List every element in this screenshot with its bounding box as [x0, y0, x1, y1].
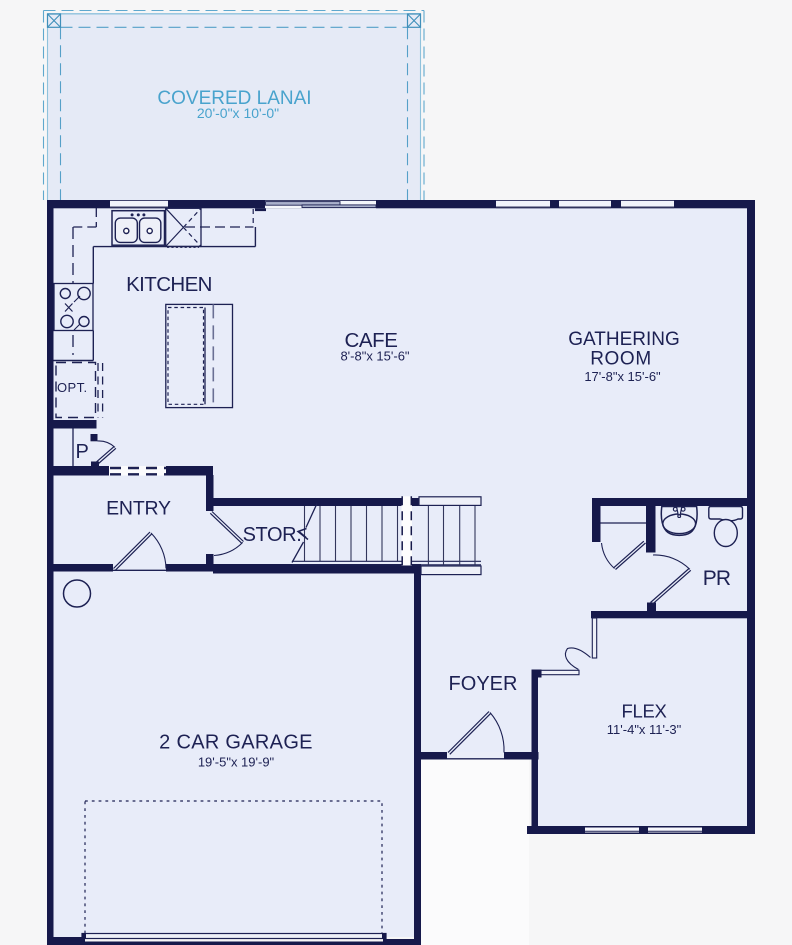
svg-text:ENTRY: ENTRY: [106, 498, 171, 520]
svg-text:OPT.: OPT.: [57, 380, 88, 395]
svg-text:11'-4"x 11'-3": 11'-4"x 11'-3": [607, 722, 682, 737]
svg-text:8'-8"x 15'-6": 8'-8"x 15'-6": [340, 349, 409, 364]
svg-text:17'-8"x 15'-6": 17'-8"x 15'-6": [584, 369, 661, 384]
svg-text:ROOM: ROOM: [590, 349, 652, 370]
svg-text:P: P: [76, 441, 89, 463]
svg-text:GATHERING: GATHERING: [568, 329, 680, 350]
svg-text:FLEX: FLEX: [621, 701, 666, 722]
svg-text:PR: PR: [703, 567, 731, 590]
svg-text:STOR.: STOR.: [243, 524, 302, 546]
svg-text:KITCHEN: KITCHEN: [126, 273, 212, 296]
svg-text:2 CAR GARAGE: 2 CAR GARAGE: [159, 732, 313, 754]
svg-text:19'-5"x 19'-9": 19'-5"x 19'-9": [198, 755, 275, 770]
svg-text:FOYER: FOYER: [449, 673, 518, 695]
svg-text:20'-0"x 10'-0": 20'-0"x 10'-0": [197, 105, 279, 121]
